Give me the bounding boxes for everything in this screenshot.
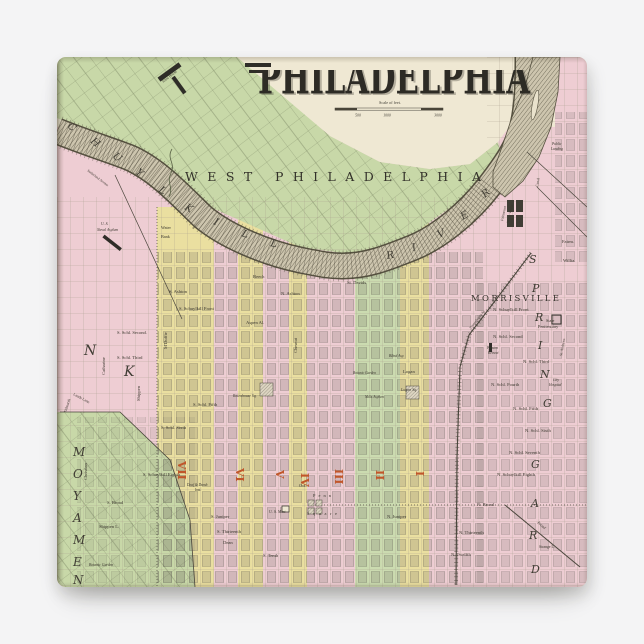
street-label: N. Thirteenth [459,530,484,535]
street-label: Catharine [101,357,106,375]
map-letter: R [534,311,543,324]
street-label: Rittenhouse Sq. [232,394,257,398]
map-letter: N [83,343,97,359]
street-label: Fairm. [562,239,574,244]
street-label: Beech [253,274,265,279]
street-label: S. Juniper [211,514,230,519]
ward-numeral: III [332,469,345,484]
street-label: N. Ashton [281,291,300,296]
map-letter: N [72,573,84,587]
street-label: City [553,378,559,382]
street-label: N. Schl. Second [493,334,523,339]
map-letter: O [73,467,83,481]
street-label: N. Schl. Sixth [525,428,551,433]
street-label: N. Schuylkill Eighth [497,472,536,477]
street-label: St. Davids [347,280,366,285]
street-label: N. Schl. Third [523,359,550,364]
street-label: S. Broad [107,500,124,505]
map-letter: I [537,339,543,352]
map-letter: N [539,368,550,381]
street-label: Public [551,142,562,146]
map-letter: K [123,364,136,380]
street-label: Hospital [548,383,561,387]
map-letter: E [72,555,82,569]
street-label: Christian [83,462,88,480]
scale-tick-1000: 1000 [383,114,391,118]
street-label: M'Duffie [163,332,168,349]
map-letter: M [72,445,86,459]
street-label: Logan [403,369,415,374]
map-letter: S [529,253,537,266]
ward-numeral: IV [298,473,311,487]
street-label: Dean [223,540,233,545]
street-label: Strange L. [539,545,555,549]
street-label: Shippen L. [99,524,119,529]
street-label: Willia. [563,258,575,263]
map-letter: R [528,529,537,542]
map-letter: G [543,397,552,410]
street-label: N. Juniper [387,514,407,519]
street-label: Naval Asylum [96,228,118,232]
philadelphia-map: Alms HouseSutherland AvenueU. S.Naval As… [57,57,587,587]
street-label: Blind Asy. [389,354,404,358]
street-label: S. Schuylkill Front [179,306,215,311]
scale-tick-3000: 3000 [434,114,442,118]
map-letter: M [72,533,86,547]
street-label: Preston [486,346,498,350]
product-photo-page: { "page": { "background": "#f4f4f5" }, "… [0,0,644,644]
scale-bar-label: Scale of feet. [379,100,401,105]
street-label: N. Twelfth [451,552,471,557]
street-label: N. Schuylkill Front [493,307,529,312]
street-label: Deaf & Dumb [186,483,208,487]
street-label: Landing [550,147,563,151]
street-label: Chesnut [293,337,298,353]
street-label: Retreat [487,351,499,355]
street-label: Logan Sq. [400,387,417,392]
street-label: Mills Asylum [364,395,384,399]
street-label: S. Schl. Second. [117,330,147,335]
ward-numeral: VI [233,467,246,482]
map-letter: G [531,458,540,471]
ward-numeral: V [273,469,286,479]
street-label: Shippen [136,385,141,401]
street-label: N. Schl. Fifth [513,406,539,411]
map-letter: Y [73,489,82,503]
street-label: N. Schl. Fourth [491,382,520,387]
map-letter: A [72,511,82,525]
street-label: Botanic Garden [353,371,376,375]
street-label: S. Schl. Third [117,355,143,360]
street-label: U. S. Mint [269,509,286,514]
street-label: N. Broad [477,502,495,507]
scale-bar-cap-right [421,108,443,110]
map-letter: D [530,563,540,576]
street-label: S. Schl. Sixth [161,425,187,430]
street-label: State [546,318,555,323]
ward-numeral: II [373,470,386,480]
street-label: S. Tenth [263,553,279,558]
street-label: N. Schl. Seventh [509,450,541,455]
street-label: Inst. [194,488,201,492]
street-label: Botanic Garden [89,563,113,567]
street-label: Penitentiary [538,324,559,329]
area-name: MORRISVILLE [471,294,559,304]
street-label: U. S. [101,222,109,226]
ward-numeral: VII [175,460,188,480]
street-label: Water [161,225,171,230]
street-label: Bank [161,234,171,239]
hospital-building [245,63,271,67]
map-magnet-tile: Alms HouseSutherland AvenueU. S.Naval As… [57,57,587,587]
street-label: S. Thirteenth [217,529,242,534]
scale-tick-500: 500 [355,114,361,118]
street-label: S. Ashton [169,289,188,294]
rittenhouse-square [260,383,273,396]
area-name: WEST PHILADELPHIA [185,169,482,184]
ward-numeral: I [413,471,426,476]
map-letter: A [530,497,539,510]
street-label: S. Schl. Fifth [193,402,218,407]
scale-bar-cap-left [335,108,357,110]
street-label: Aspen Al. [246,320,264,325]
